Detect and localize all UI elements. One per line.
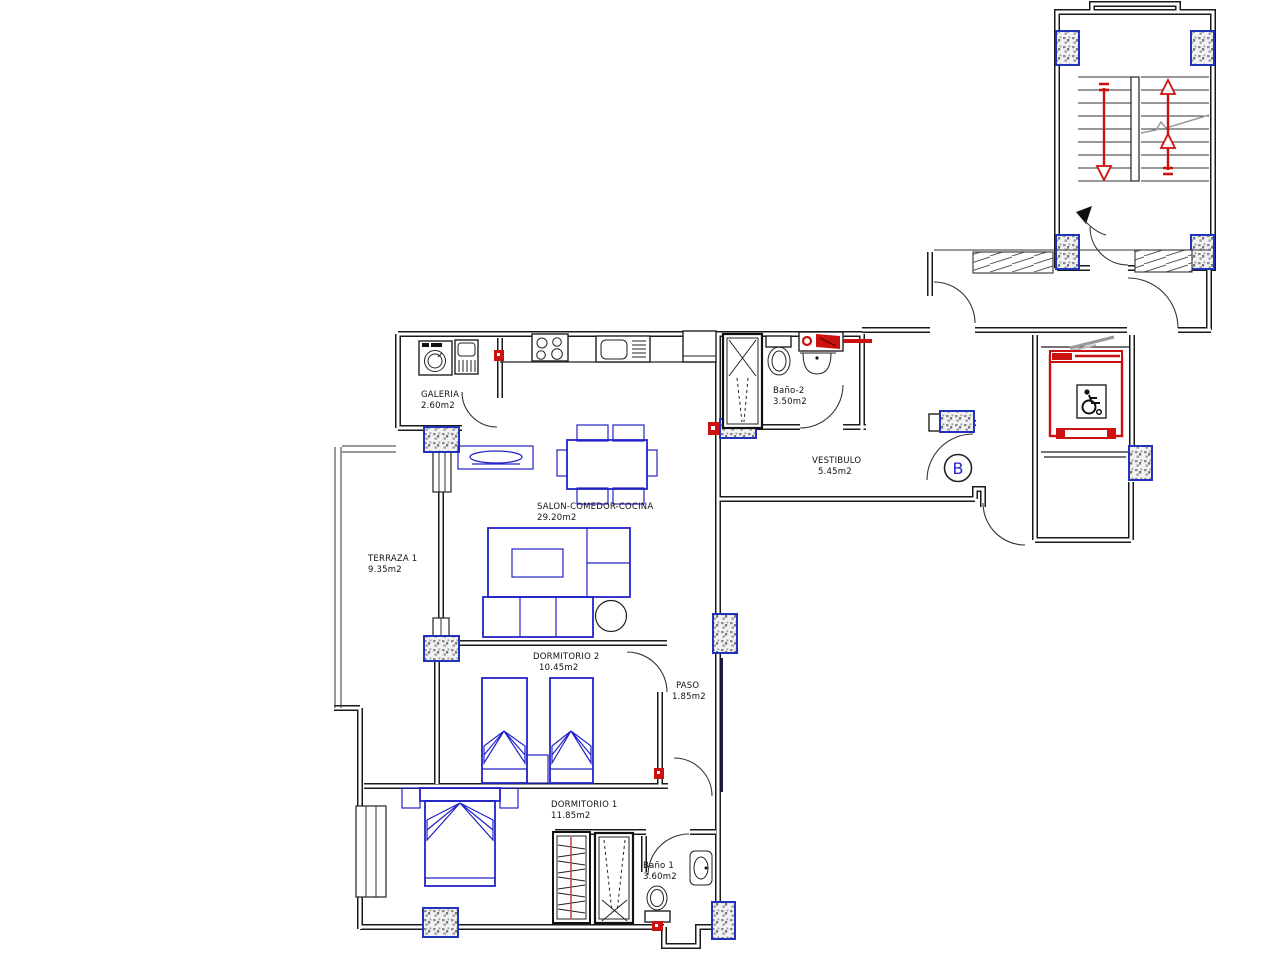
shower-icon: [595, 833, 633, 923]
room-label-dormitorio1: DORMITORIO 1: [551, 800, 617, 810]
pillar: [1056, 235, 1079, 269]
pillar: [712, 902, 735, 939]
floor-plan-page: B: [0, 0, 1280, 960]
pillar: [1191, 31, 1214, 65]
pillar: [940, 411, 974, 432]
room-area-bano1: 3.60m2: [643, 872, 677, 882]
room-label-terraza: TERRAZA 1: [367, 554, 417, 564]
room-label-bano1: Baño 1: [643, 861, 674, 871]
room-area-dormitorio2: 10.45m2: [539, 663, 578, 673]
room-area-terraza: 9.35m2: [368, 565, 402, 575]
wall-section-hatched: [1135, 250, 1192, 272]
unit-label: B: [953, 459, 964, 478]
room-label-paso: PASO: [676, 681, 699, 691]
pillar: [713, 614, 737, 653]
pillar: [423, 908, 458, 937]
pillar: [1056, 31, 1079, 65]
room-area-dormitorio1: 11.85m2: [551, 811, 590, 821]
room-area-bano2: 3.50m2: [773, 397, 807, 407]
pillar: [1129, 446, 1152, 480]
pillar: [424, 636, 459, 661]
kitchen-sink-icon: [596, 336, 650, 362]
room-label-dormitorio2: DORMITORIO 2: [533, 652, 599, 662]
room-label-salon: SALON-COMEDOR-COCINA: [537, 502, 653, 512]
floor-plan-drawing: B: [0, 0, 1280, 960]
wardrobe: [553, 832, 590, 923]
shower-icon: [723, 334, 762, 428]
elevator-door: [1057, 429, 1115, 438]
room-label-vestibulo: VESTIBULO: [812, 456, 861, 466]
pillar: [424, 427, 459, 452]
wheelchair-icon: [1077, 385, 1106, 418]
room-label-bano2: Baño-2: [773, 386, 804, 396]
washing-machine-icon: [419, 341, 452, 375]
paper-background: [0, 0, 1280, 960]
pillar: [1191, 235, 1214, 269]
stove-icon: [532, 334, 568, 361]
room-area-galeria: 2.60m2: [421, 401, 455, 411]
room-area-vestibulo: 5.45m2: [818, 467, 852, 477]
room-label-galeria: GALERIA: [421, 390, 459, 400]
kitchen: [500, 331, 716, 362]
utility-sink-icon: [455, 340, 478, 374]
room-area-paso: 1.85m2: [672, 692, 706, 702]
wall-section-hatched: [973, 252, 1053, 273]
room-area-salon: 29.20m2: [537, 513, 576, 523]
fridge-icon: [683, 331, 716, 362]
